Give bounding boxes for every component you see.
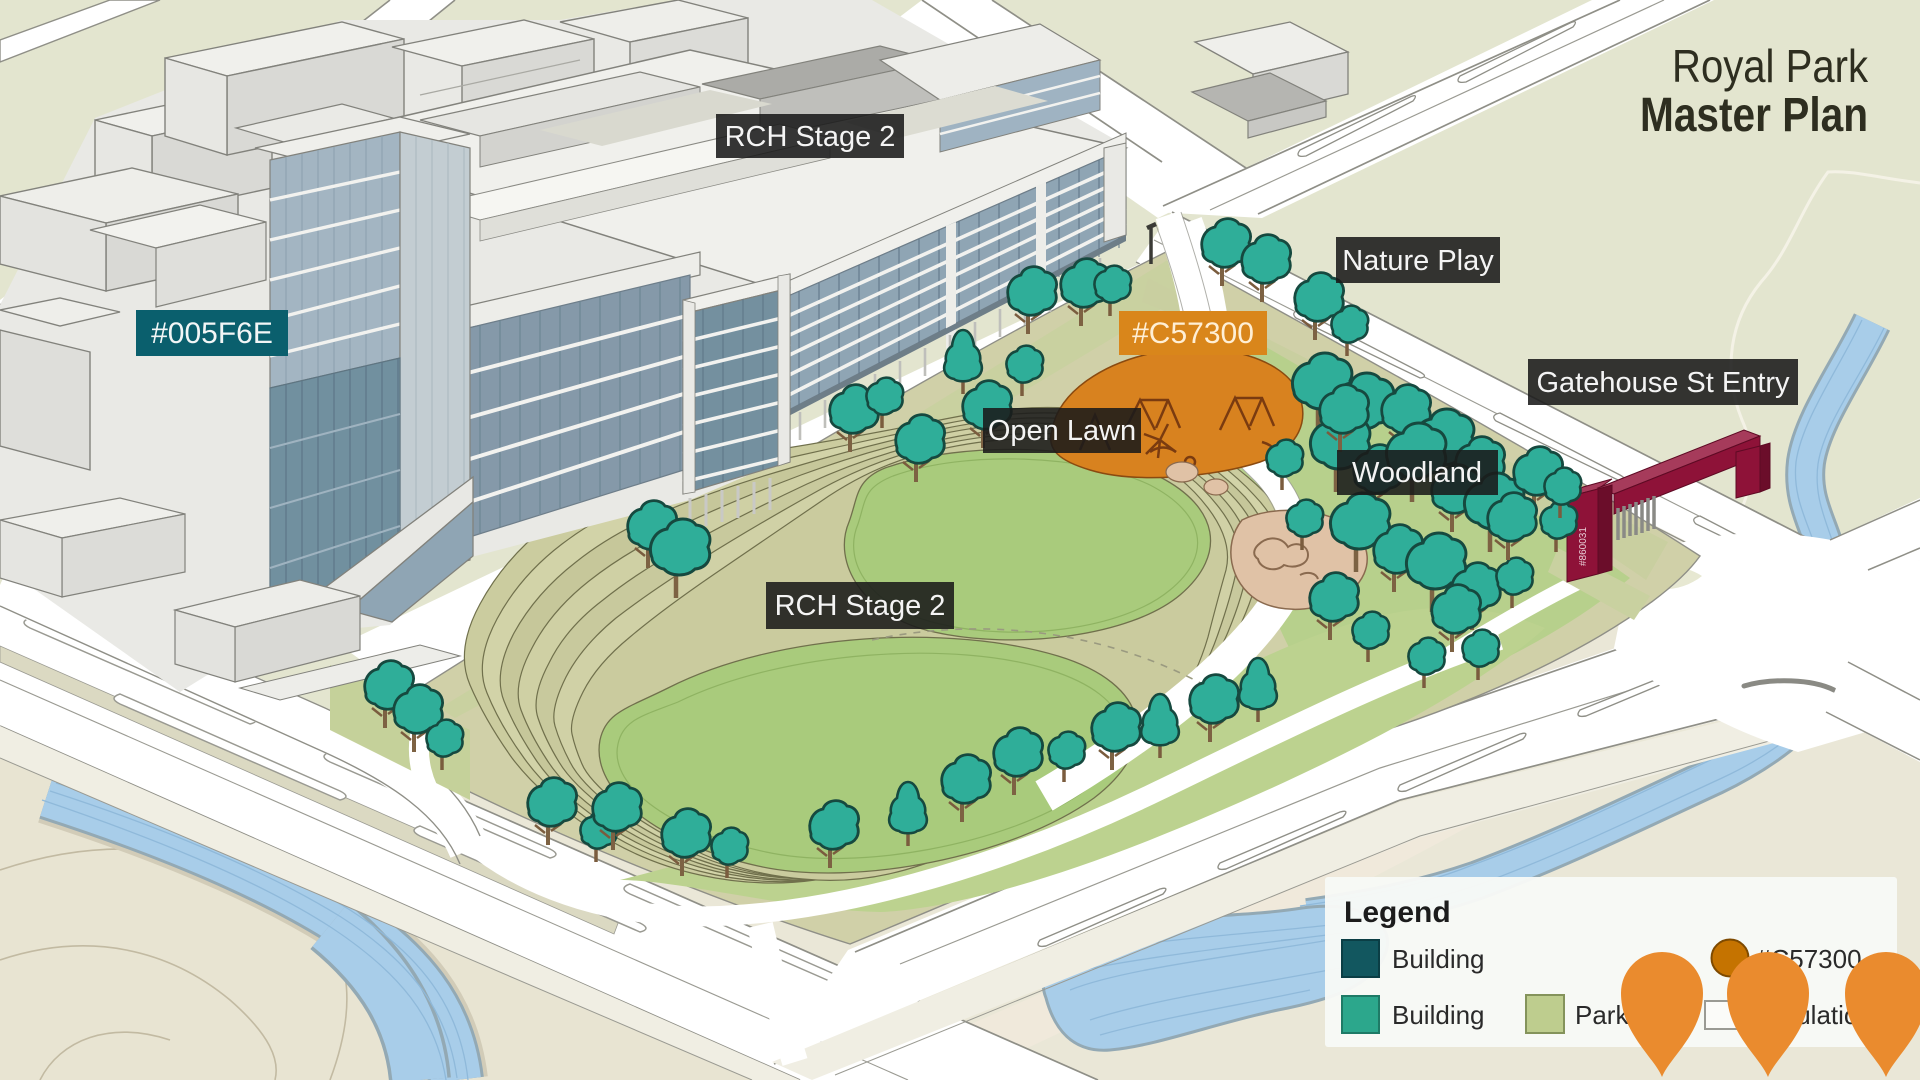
- svg-text:#C57300: #C57300: [1132, 317, 1254, 350]
- svg-text:Gatehouse St Entry: Gatehouse St Entry: [1536, 367, 1790, 399]
- svg-text:Building: Building: [1392, 1000, 1485, 1030]
- svg-text:#860031: #860031: [1578, 527, 1589, 566]
- svg-text:Master Plan: Master Plan: [1640, 89, 1868, 142]
- svg-text:Woodland: Woodland: [1352, 457, 1482, 489]
- svg-text:RCH Stage 2: RCH Stage 2: [775, 590, 946, 622]
- svg-text:#005F6E: #005F6E: [151, 317, 273, 350]
- svg-text:Legend: Legend: [1344, 896, 1451, 929]
- svg-text:RCH Stage 2: RCH Stage 2: [725, 121, 896, 153]
- svg-text:Building: Building: [1392, 944, 1485, 974]
- svg-text:Open Lawn: Open Lawn: [988, 415, 1136, 447]
- svg-text:Nature Play: Nature Play: [1342, 245, 1494, 277]
- svg-text:Royal Park: Royal Park: [1672, 40, 1869, 92]
